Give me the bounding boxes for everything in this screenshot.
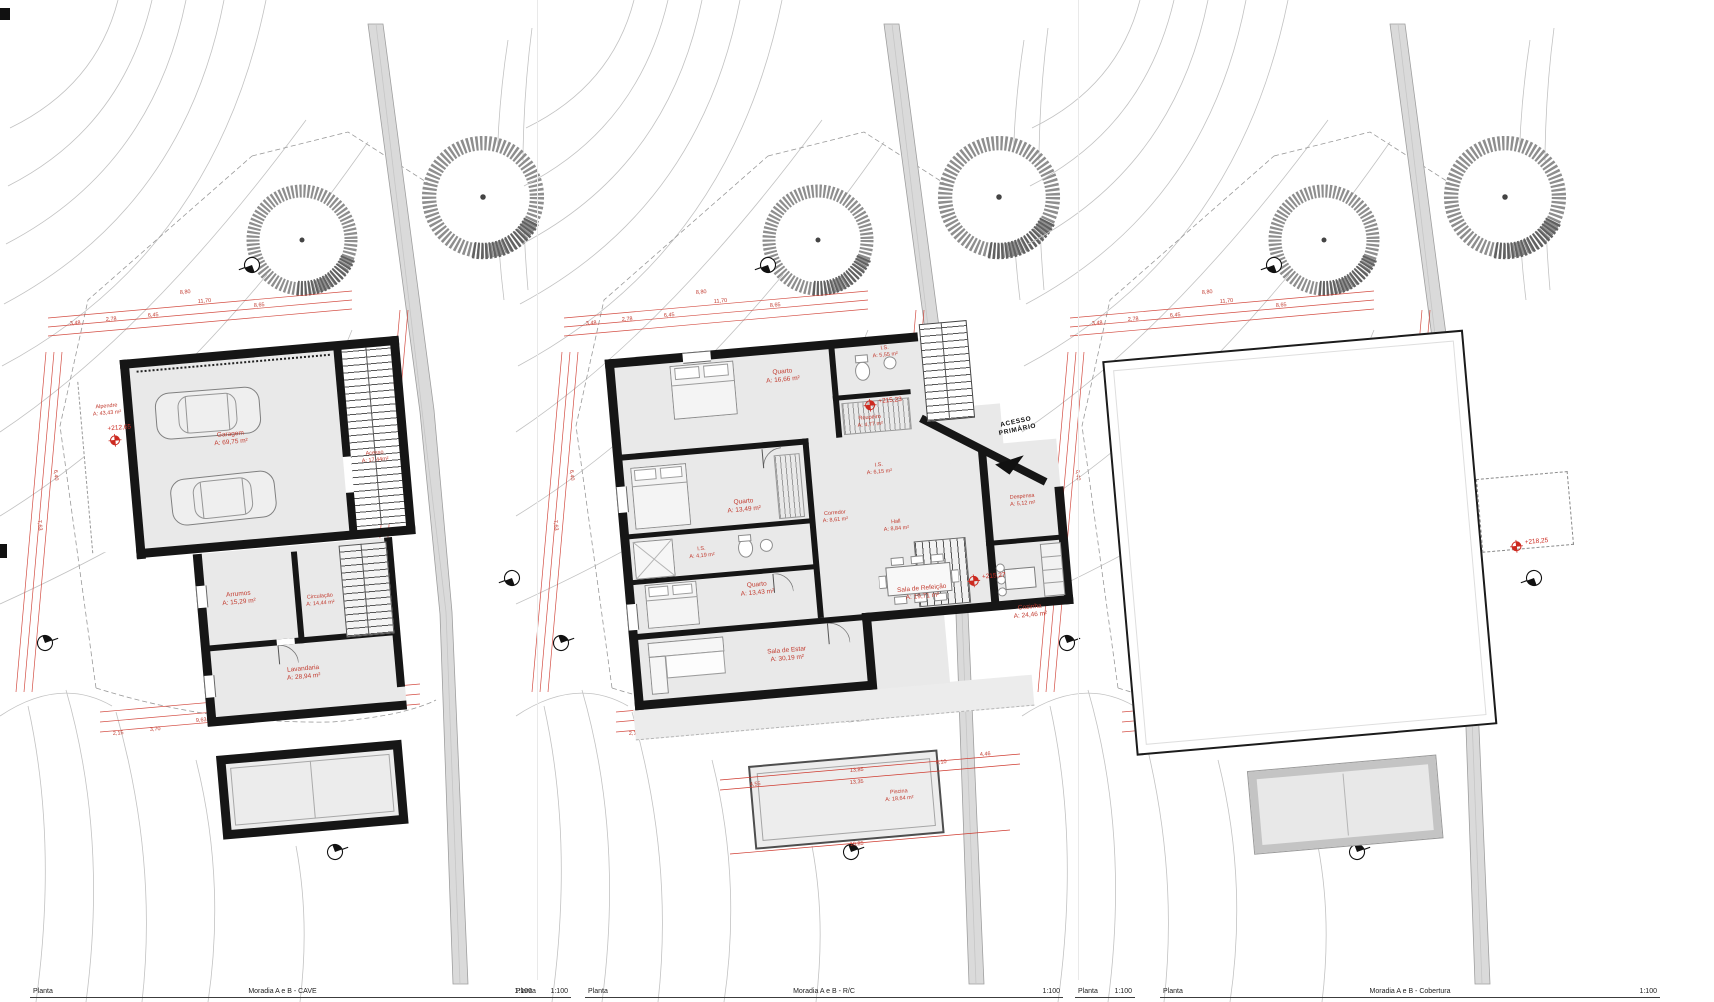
sheet-corner-tick (0, 8, 10, 20)
svg-text:4,46: 4,46 (980, 751, 991, 758)
svg-text:7,63: 7,63 (36, 520, 43, 531)
svg-text:3,48: 3,48 (586, 320, 597, 327)
tree-icon (769, 191, 867, 289)
stairs-exterior (919, 320, 975, 422)
bed-icon (644, 581, 700, 629)
tree-icon (1451, 143, 1559, 251)
title-block-cave: Planta Moradia A e B - CAVE 1:100 (30, 982, 535, 998)
svg-text:8,80: 8,80 (1202, 289, 1213, 296)
window (203, 675, 216, 698)
svg-text:2,78: 2,78 (1128, 316, 1139, 323)
panel-divider (537, 0, 538, 980)
window (626, 604, 639, 631)
svg-text:8,65: 8,65 (254, 302, 265, 309)
svg-text:2,78: 2,78 (106, 316, 117, 323)
title-name: Moradia A e B - Cobertura (1160, 988, 1660, 995)
title-block-small-1: Planta 1:100 (513, 982, 571, 998)
svg-text:3,48: 3,48 (70, 320, 81, 327)
svg-text:13,35: 13,35 (850, 779, 864, 786)
title-block-small-2: Planta 1:100 (1075, 982, 1135, 998)
svg-text:4,55: 4,55 (750, 781, 761, 788)
svg-text:2,78: 2,78 (622, 316, 633, 323)
title-name: Moradia A e B - CAVE (30, 988, 535, 995)
shower-icon (633, 538, 676, 579)
sofa-icon (647, 636, 727, 694)
svg-text:8,80: 8,80 (696, 289, 707, 296)
panel-divider (1078, 0, 1079, 980)
level-icon (967, 574, 981, 588)
building-rc: QuartoA: 16,66 m² I.S.A: 5,55 m² Roupeir… (600, 290, 1096, 758)
svg-text:11,70: 11,70 (714, 298, 728, 305)
svg-text:6,45: 6,45 (148, 312, 159, 319)
tree-icon (253, 191, 351, 289)
pool-dimensions: 13,85 13,35 10,85 8,10 4,55 4,46 (700, 724, 1040, 874)
door-arc (761, 447, 783, 469)
toilet-sink-icons (734, 532, 776, 561)
svg-text:6,45: 6,45 (664, 312, 675, 319)
svg-text:6,40: 6,40 (568, 470, 575, 481)
svg-text:11,70: 11,70 (198, 298, 212, 305)
level-icon (108, 433, 122, 447)
level-mark: +212,65 (107, 423, 133, 447)
level-icon (1509, 539, 1523, 553)
window (196, 585, 209, 608)
bed-icon (669, 361, 737, 420)
door-arc (277, 644, 299, 666)
door-arc (826, 621, 850, 645)
svg-text:8,65: 8,65 (1276, 302, 1287, 309)
building-cobertura: +218,25 (1092, 294, 1609, 774)
tree-icon (945, 143, 1053, 251)
window (616, 486, 629, 513)
building-cave: AlpendreA: 43,43 m² GaragemA: 69,75 m² A… (75, 327, 438, 744)
svg-text:6,40: 6,40 (52, 470, 59, 481)
level-mark: +218,25 (1509, 537, 1549, 553)
roof-outline (1102, 330, 1497, 756)
pool-cobertura (1248, 756, 1442, 854)
svg-text:8,65: 8,65 (770, 302, 781, 309)
svg-text:10,85: 10,85 (850, 841, 864, 848)
svg-text:11,70: 11,70 (1220, 298, 1234, 305)
level-icon (863, 398, 877, 412)
svg-text:7,63: 7,63 (552, 520, 559, 531)
svg-text:8,10: 8,10 (936, 759, 947, 766)
sheet-edge-tick (0, 544, 7, 558)
svg-text:13,85: 13,85 (850, 767, 864, 774)
tree-icon (429, 143, 537, 251)
pool-cave (216, 740, 409, 840)
bed-icon (630, 463, 691, 530)
title-name: Moradia A e B - R/C (585, 988, 1063, 995)
svg-text:8,80: 8,80 (180, 289, 191, 296)
svg-text:3,48: 3,48 (1092, 320, 1103, 327)
tree-icon (1275, 191, 1373, 289)
drawing-sheet: 3,48 2,78 6,45 11,70 8,65 8,80 7,63 6,40… (0, 0, 1714, 1002)
title-block-cobertura: Planta Moradia A e B - Cobertura 1:100 (1160, 982, 1660, 998)
svg-text:6,45: 6,45 (1170, 312, 1181, 319)
title-block-rc: Planta Moradia A e B - R/C 1:100 (585, 982, 1063, 998)
